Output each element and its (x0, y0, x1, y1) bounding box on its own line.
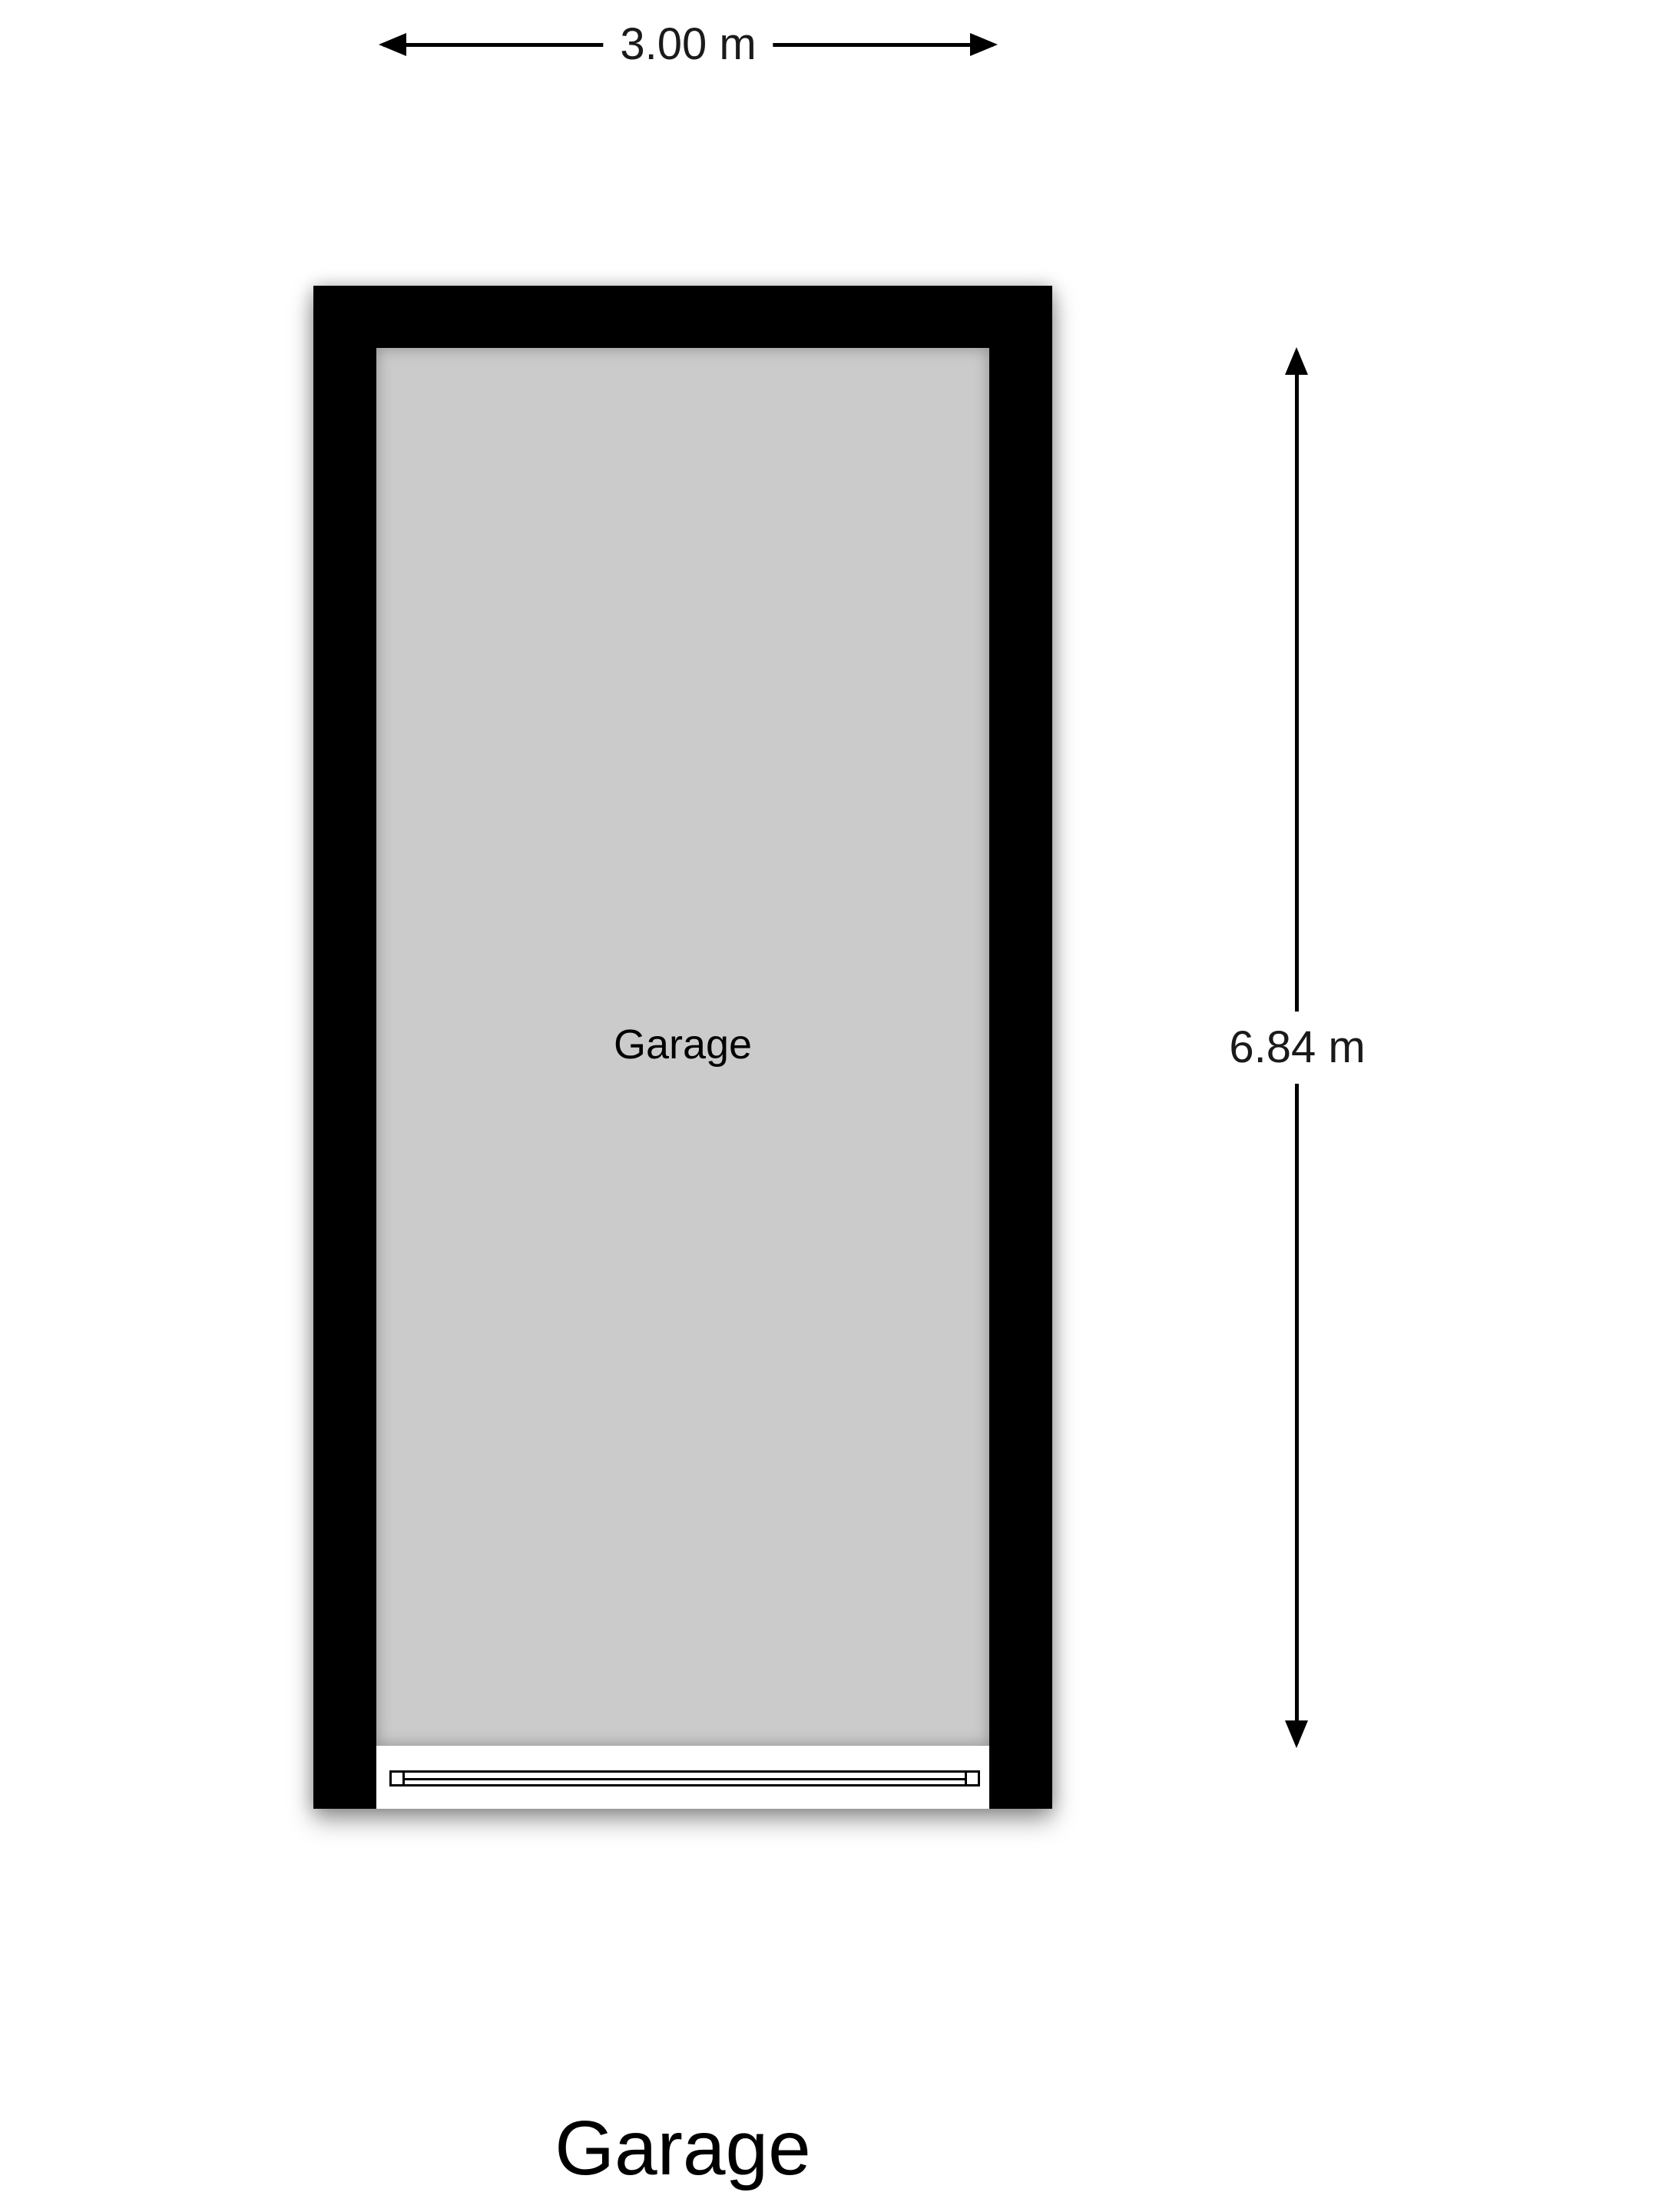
height-dimension: 6.84 m (1281, 347, 1313, 1748)
garage-room: Garage (313, 286, 1052, 1809)
width-dimension: 3.00 m (379, 30, 998, 59)
garage-door-left-cap (392, 1773, 405, 1784)
garage-door-right-cap (965, 1773, 978, 1784)
arrow-right-icon (970, 33, 998, 56)
width-dimension-label: 3.00 m (603, 22, 773, 67)
plan-title: Garage (313, 2106, 1052, 2190)
room-label: Garage (376, 1024, 989, 1065)
garage-door-panel (405, 1773, 965, 1784)
garage-door-symbol (389, 1770, 980, 1786)
floorplan-canvas: 3.00 m Garage 6.84 m Garage (0, 0, 1659, 2212)
garage-door-opening (376, 1746, 989, 1809)
height-dimension-label: 6.84 m (1218, 1012, 1376, 1084)
garage-floor: Garage (376, 348, 989, 1746)
arrow-down-icon (1285, 1720, 1308, 1748)
